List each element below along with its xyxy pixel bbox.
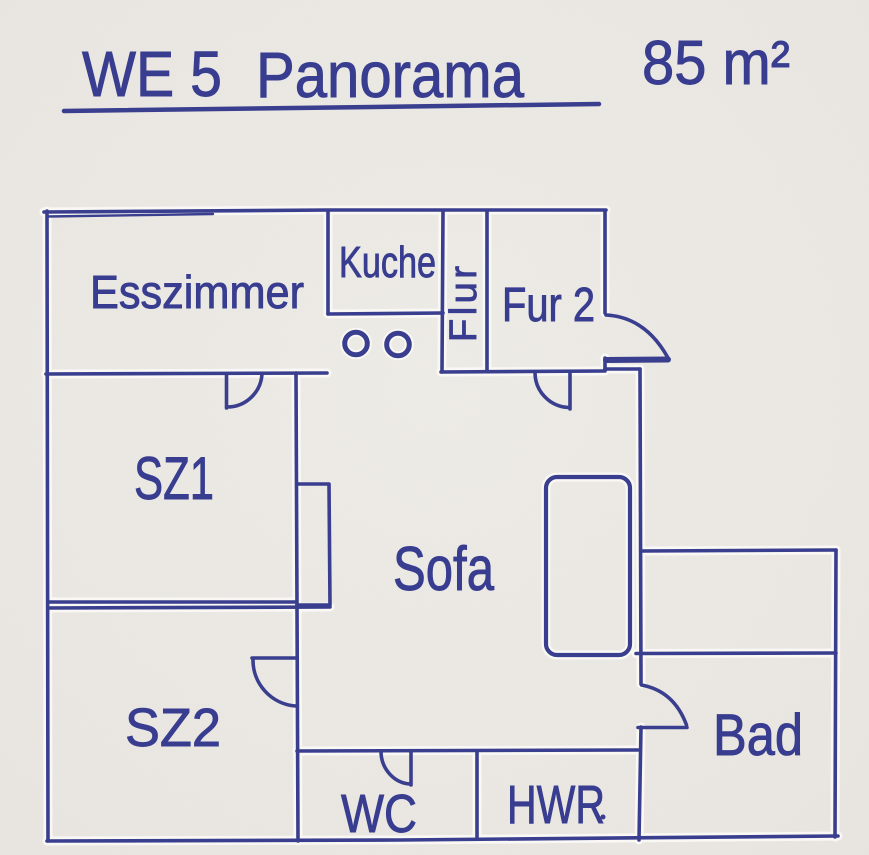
svg-text:Bad: Bad <box>713 703 803 768</box>
svg-text:WC: WC <box>341 784 417 844</box>
svg-text:SZ2: SZ2 <box>125 698 221 758</box>
svg-text:Flur: Flur <box>443 266 485 342</box>
svg-text:WE 5: WE 5 <box>82 38 222 110</box>
svg-text:85 m²: 85 m² <box>642 29 790 98</box>
svg-text:Fur 2: Fur 2 <box>502 279 595 332</box>
svg-text:SZ1: SZ1 <box>134 445 214 512</box>
svg-text:Sofa: Sofa <box>393 535 494 604</box>
svg-text:Esszimmer: Esszimmer <box>90 266 304 318</box>
svg-text:Panorama: Panorama <box>256 39 524 111</box>
svg-text:HWR: HWR <box>507 775 605 835</box>
svg-text:Kuche: Kuche <box>339 238 436 287</box>
